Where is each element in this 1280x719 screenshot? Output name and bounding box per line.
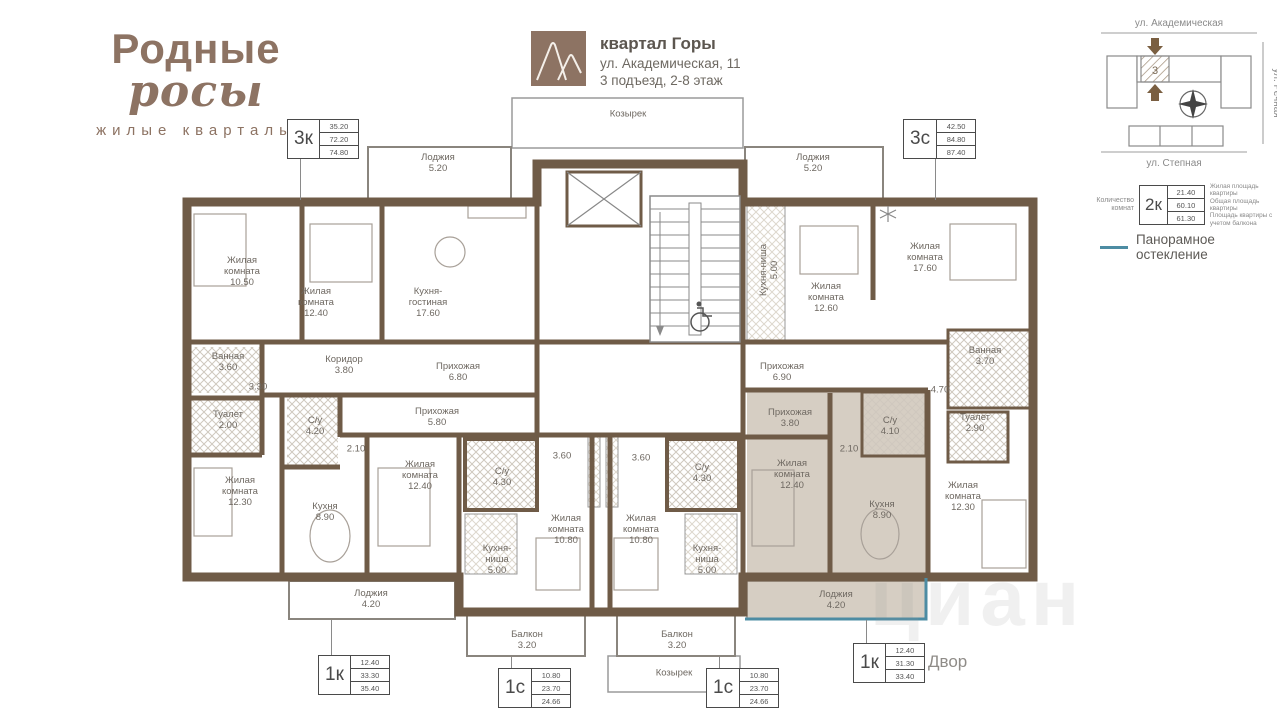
room-label: Козырек xyxy=(610,108,647,119)
room-label: 2.10 xyxy=(840,443,859,454)
apartment-type: 1к xyxy=(319,656,350,694)
leader-line xyxy=(331,620,332,655)
apartment-area-value: 87.40 xyxy=(937,146,975,158)
leader-line xyxy=(300,159,301,200)
stairs xyxy=(650,196,740,342)
apartment-area-value: 35.20 xyxy=(320,120,358,133)
room-label: 3.30 xyxy=(249,381,268,392)
room-label: Кухня 8.90 xyxy=(312,501,337,523)
apartment-type: 3к xyxy=(288,120,319,158)
apartment-type: 3с xyxy=(904,120,936,158)
apartment-type: 1к xyxy=(854,644,885,682)
apartment-tag: 1к12.4031.3033.40 xyxy=(853,643,925,683)
apartment-type: 1с xyxy=(499,669,531,707)
room-label: Ванная 3.70 xyxy=(969,345,1002,367)
room-label: Жилая комната 10.80 xyxy=(548,513,584,547)
apartment-tag: 1с10.8023.7024.66 xyxy=(498,668,571,708)
room-label: Балкон 3.20 xyxy=(511,629,543,651)
apartment-area-value: 10.80 xyxy=(532,669,570,682)
apartment-area-value: 12.40 xyxy=(351,656,389,669)
room-label: Балкон 3.20 xyxy=(661,629,693,651)
room-label: Туалет 2.90 xyxy=(960,412,990,434)
room-label: Кухня 8.90 xyxy=(869,499,894,521)
room-label: Жилая комната 12.40 xyxy=(298,286,334,320)
room-label: Прихожая 5.80 xyxy=(415,406,459,428)
room-label: С/у 4.30 xyxy=(493,466,512,488)
room-label: Жилая комната 12.60 xyxy=(808,281,844,315)
room-label: Жилая комната 12.30 xyxy=(222,475,258,509)
elevator-shaft xyxy=(567,172,641,226)
apartment-area-value: 72.20 xyxy=(320,133,358,146)
room-label: Туалет 2.00 xyxy=(213,409,243,431)
apartment-area-value: 24.66 xyxy=(740,695,778,707)
room-label: Кухня-ниша 5.00 xyxy=(758,244,780,296)
room-label: Жилая комната 10.50 xyxy=(224,255,260,289)
apartment-area-value: 33.30 xyxy=(351,669,389,682)
room-label: 4.70 xyxy=(931,384,950,395)
room-label: Лоджия 5.20 xyxy=(796,152,830,174)
apartment-tag: 1к12.4033.3035.40 xyxy=(318,655,390,695)
apartment-tag: 1с10.8023.7024.66 xyxy=(706,668,779,708)
apartment-area-value: 42.50 xyxy=(937,120,975,133)
leader-line xyxy=(719,657,720,668)
leader-line xyxy=(935,159,936,200)
room-label: 3.60 xyxy=(553,450,572,461)
room-label: Кухня- гостиная 17.60 xyxy=(409,286,448,320)
apartment-area-value: 23.70 xyxy=(740,682,778,695)
room-label: 2.10 xyxy=(347,443,366,454)
room-label: Жилая комната 12.30 xyxy=(945,480,981,514)
floor-plan-page: Родные росы жилые кварталы квартал Горы … xyxy=(0,0,1280,719)
apartment-area-value: 23.70 xyxy=(532,682,570,695)
room-label: Кухня- ниша 5.00 xyxy=(693,543,722,577)
apartment-area-value: 74.80 xyxy=(320,146,358,158)
room-label: Кухня- ниша 5.00 xyxy=(483,543,512,577)
leader-line xyxy=(511,657,512,668)
room-label: Жилая комната 12.40 xyxy=(402,459,438,493)
room-label: Лоджия 5.20 xyxy=(421,152,455,174)
room-label: Ванная 3.60 xyxy=(212,351,245,373)
apartment-area-value: 24.66 xyxy=(532,695,570,707)
apartment-type: 1с xyxy=(707,669,739,707)
apartment-area-value: 84.80 xyxy=(937,133,975,146)
watermark: циан xyxy=(870,552,1085,644)
room-label: Жилая комната 12.40 xyxy=(774,458,810,492)
room-label: 3.60 xyxy=(632,452,651,463)
apartment-tag: 3с42.5084.8087.40 xyxy=(903,119,976,159)
room-label: Жилая комната 10.80 xyxy=(623,513,659,547)
apartment-area-value: 10.80 xyxy=(740,669,778,682)
room-label: Прихожая 3.80 xyxy=(768,407,812,429)
room-label: Лоджия 4.20 xyxy=(819,589,853,611)
room-label: С/у 4.20 xyxy=(306,415,325,437)
apartment-tag: 3к35.2072.2074.80 xyxy=(287,119,359,159)
room-label: С/у 4.10 xyxy=(881,415,900,437)
room-label: Коридор 3.80 xyxy=(325,354,363,376)
room-label: Прихожая 6.90 xyxy=(760,361,804,383)
room-label: Козырек xyxy=(656,667,693,678)
room-label: Прихожая 6.80 xyxy=(436,361,480,383)
apartment-area-value: 31.30 xyxy=(886,657,924,670)
apartment-area-value: 35.40 xyxy=(351,682,389,694)
leader-line xyxy=(866,620,867,643)
apartment-area-value: 33.40 xyxy=(886,670,924,682)
room-label: Лоджия 4.20 xyxy=(354,588,388,610)
room-label: Жилая комната 17.60 xyxy=(907,241,943,275)
apartment-area-value: 12.40 xyxy=(886,644,924,657)
yard-label: Двор xyxy=(928,652,967,672)
room-label: С/у 4.30 xyxy=(693,462,712,484)
